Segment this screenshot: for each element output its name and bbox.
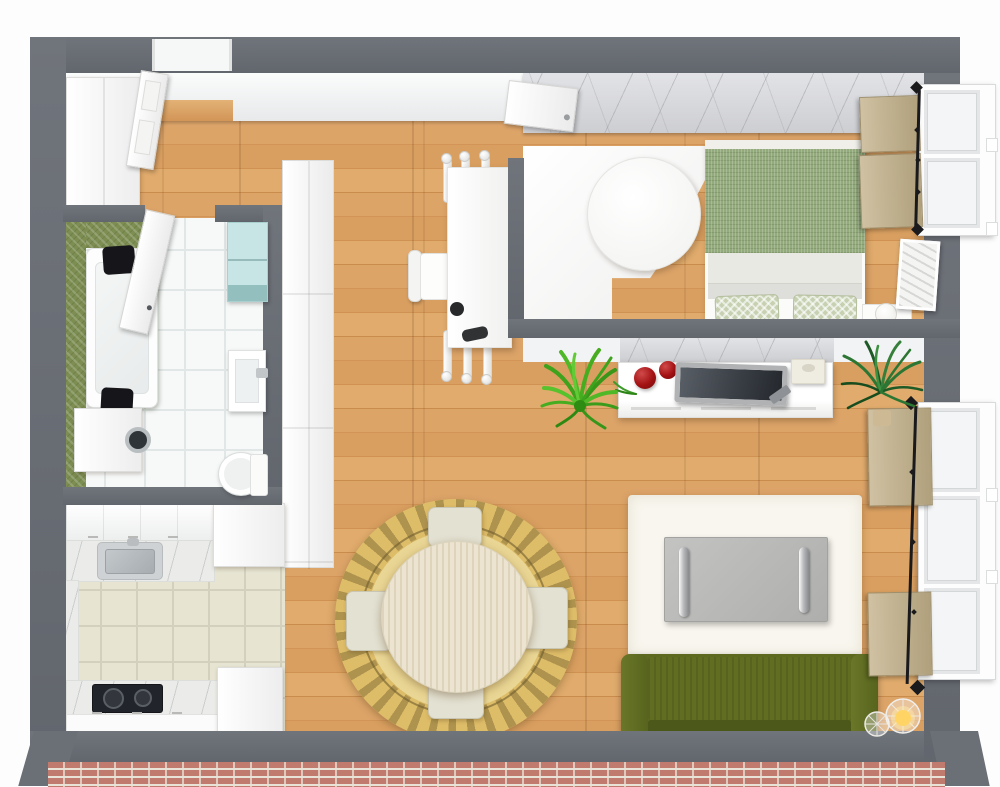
table-leg-finial (441, 153, 452, 164)
bathroom-teal-cabinet (227, 222, 268, 302)
outer-wall-left (30, 37, 66, 760)
coffee-table-chrome-rail (679, 547, 689, 617)
hallway-tall-cabinet (282, 160, 334, 568)
sofa-seat (648, 657, 851, 720)
speaker-button (802, 364, 815, 372)
roman-blind (867, 591, 932, 676)
speaker-box (791, 359, 825, 384)
sink-basin (235, 359, 259, 403)
floor-plan-canvas (0, 0, 1000, 787)
bathroom-faucet (256, 368, 268, 378)
drawer-handle (771, 407, 816, 410)
cabinet-handle (88, 536, 98, 538)
drawer-handle (631, 407, 681, 410)
window-sash (924, 158, 980, 228)
burner (103, 688, 124, 709)
table-decor-bowl (450, 302, 464, 316)
window-sill (986, 138, 998, 152)
palm-plant (836, 338, 926, 438)
kitchen-tall-cabinet (213, 503, 285, 567)
door-molding (134, 119, 155, 155)
sink-bowl (105, 549, 155, 574)
bedroom-wall-south (508, 319, 960, 338)
bathroom-sink (228, 350, 266, 412)
exterior-brick-edge (48, 762, 945, 787)
table-leg-finial (441, 371, 452, 382)
door-handle (564, 114, 571, 121)
white-rectangular-table (447, 167, 512, 348)
entry-door-opening (152, 39, 232, 71)
table-leg-finial (461, 373, 472, 384)
washing-machine-porthole (125, 427, 151, 453)
door-molding (141, 80, 161, 112)
sofa-armrest (621, 654, 648, 738)
burner (134, 689, 152, 707)
cabinet-handle (132, 712, 142, 714)
window-sill (986, 488, 998, 502)
toilet-tank (250, 454, 268, 496)
table-leg-finial (479, 150, 490, 161)
window-sill (986, 570, 998, 584)
window-sill (986, 222, 998, 236)
kitchen-sink (97, 542, 163, 580)
cabinet-handle (92, 712, 102, 714)
outer-wall-bottom (30, 731, 963, 762)
cage-floor-lamp (863, 692, 929, 744)
side-chair-seat (420, 253, 450, 300)
cabinet-seam (308, 161, 310, 569)
leaning-art-frame (896, 239, 941, 312)
bedroom-window (918, 84, 996, 236)
window-sash (924, 496, 980, 584)
cabinet-handle (172, 712, 182, 714)
window-sash (924, 90, 980, 154)
table-leg-finial (459, 151, 470, 162)
wardrobe-door-seam (103, 78, 105, 208)
table-leg-finial (481, 374, 492, 385)
cabinet-shelf-line (228, 259, 267, 261)
cabinet-handle (168, 536, 178, 538)
kitchen-corner-cabinet (217, 667, 283, 737)
folded-sheet (708, 253, 862, 284)
kitchen-faucet (127, 538, 139, 546)
bathroom-wall-top-left (63, 205, 145, 222)
cabinet-handle (128, 536, 138, 538)
cabinet-underside (228, 285, 267, 301)
entry-doorway-floor (156, 100, 233, 121)
fern-plant (540, 344, 620, 442)
round-dining-table (381, 541, 533, 693)
desk-round-end (587, 157, 701, 271)
roman-blind (859, 95, 921, 153)
door-handle (146, 305, 152, 311)
double-bed (705, 140, 865, 324)
sage-duvet (705, 149, 865, 253)
bedroom-wall-west (508, 158, 524, 324)
sofa (621, 654, 878, 738)
coffee-table-chrome-rail (799, 547, 809, 613)
drawer-handle (701, 407, 751, 410)
bedroom-door (504, 80, 579, 132)
